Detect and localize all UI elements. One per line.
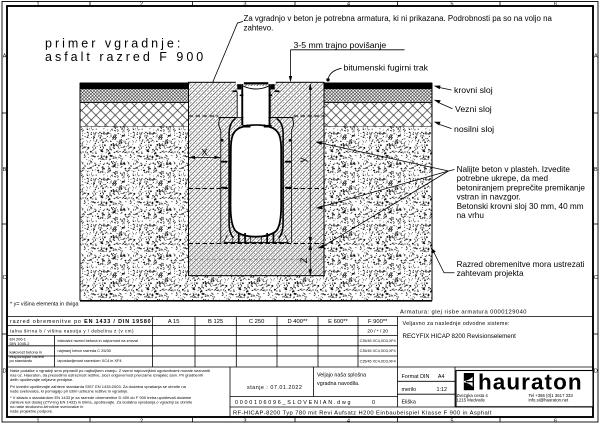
svg-text:1: 1: [37, 418, 40, 424]
svg-text:zahtevam projekta: zahtevam projekta: [457, 269, 524, 278]
svg-text:vgradna navodila.: vgradna navodila.: [317, 381, 360, 387]
svg-text:y: y: [298, 157, 309, 162]
svg-text:potrebne ukrepe, da med: potrebne ukrepe, da med: [457, 174, 549, 183]
svg-text:Veljajo naša splošna: Veljajo naša splošna: [317, 373, 366, 379]
svg-text:B 125: B 125: [208, 319, 223, 325]
svg-text:Razred obremenitve mora ustrez: Razred obremenitve mora ustrezati: [457, 260, 585, 269]
svg-text:1215 Medvode: 1215 Medvode: [457, 398, 486, 403]
svg-text:Armatura: glej risbe armatura: Armatura: glej risbe armatura 0000129040: [400, 310, 527, 316]
svg-text:A: A: [3, 54, 7, 60]
svg-text:Z: Z: [299, 257, 310, 263]
svg-text:vstran in navzgor.: vstran in navzgor.: [457, 193, 521, 202]
svg-text:stanje : 07.01.2022: stanje : 07.01.2022: [247, 385, 302, 391]
svg-text:nosilni sloj: nosilni sloj: [454, 124, 494, 134]
svg-text:betoniranjem preprečite premik: betoniranjem preprečite premikanje: [457, 183, 586, 192]
svg-text:B: B: [594, 167, 598, 173]
svg-text:C: C: [3, 275, 7, 281]
svg-text:4: 4: [347, 418, 350, 424]
svg-text:F 900**: F 900**: [368, 319, 388, 325]
svg-text:2: 2: [140, 1, 143, 7]
svg-text:5: 5: [451, 1, 454, 7]
svg-text:3: 3: [244, 418, 247, 424]
svg-text:Format DIN: Format DIN: [402, 374, 430, 380]
svg-text:0: 0: [372, 400, 375, 406]
svg-text:trdnostni razred betona in odp: trdnostni razred betona in odpornost na …: [58, 338, 139, 343]
svg-text:20 / * / 20: 20 / * / 20: [367, 329, 388, 335]
svg-text:D: D: [3, 369, 7, 375]
svg-text:0000106096_SLOVENIAN.dwg: 0000106096_SLOVENIAN.dwg: [235, 400, 352, 406]
svg-text:naše svetovalce, ki pomagajo p: naše svetovalce, ki pomagajo pri izbiri …: [10, 389, 129, 394]
svg-text:3-5 mm trajno povišanje: 3-5 mm trajno povišanje: [294, 40, 387, 50]
svg-text:RF-HICAP-8200 Typ 780 mit Revi: RF-HICAP-8200 Typ 780 mit Revi Aufsatz H…: [233, 411, 492, 417]
svg-text:A4: A4: [438, 374, 445, 380]
svg-text:D: D: [594, 369, 598, 375]
svg-text:merilo: merilo: [402, 387, 417, 393]
svg-text:C 250: C 250: [249, 319, 264, 325]
svg-text:bitumenski fugirni trak: bitumenski fugirni trak: [344, 62, 429, 72]
svg-text:po standardu: po standardu: [10, 358, 33, 363]
svg-text:RECYFIX HICAP 8200 Revisionsel: RECYFIX HICAP 8200 Revisionselement: [403, 333, 517, 340]
svg-text:Nalijte beton v plasteh. Izved: Nalijte beton v plasteh. Izvedite: [457, 165, 571, 174]
svg-text:4: 4: [347, 1, 350, 7]
svg-text:krovni sloj: krovni sloj: [454, 85, 493, 95]
svg-text:1: 1: [37, 1, 40, 7]
svg-text:5: 5: [451, 418, 454, 424]
svg-text:2: 2: [140, 418, 143, 424]
svg-text:DIN 1045-2: DIN 1045-2: [10, 341, 30, 346]
svg-text:6: 6: [554, 1, 557, 7]
svg-text:C35/45 XC4,XD3,XF4: C35/45 XC4,XD3,XF4: [360, 349, 396, 353]
svg-text:C35/45 XC4,XD3,XF4: C35/45 XC4,XD3,XF4: [360, 339, 396, 343]
svg-text:na vrhu: na vrhu: [457, 211, 485, 220]
svg-text:C35/45 XC4,XD3,XF4: C35/45 XC4,XD3,XF4: [360, 359, 396, 363]
svg-text:razred obremenitve po EN 1433: razred obremenitve po EN 1433 / DIN 1958…: [10, 319, 152, 325]
svg-text:hauraton: hauraton: [478, 370, 583, 395]
svg-text:1:12: 1:12: [437, 387, 448, 393]
svg-text:Veljavno za naslednje odvodne: Veljavno za naslednje odvodne sisteme:: [403, 321, 510, 327]
svg-text:D 400**: D 400**: [288, 319, 309, 325]
svg-text:Vezni sloj: Vezni sloj: [455, 104, 492, 114]
svg-text:Za vgradnjo v beton je potrebn: Za vgradnjo v beton je potrebna armatura…: [244, 14, 553, 23]
svg-text:B: B: [3, 167, 7, 173]
svg-text:6: 6: [554, 418, 557, 424]
svg-text:E 600**: E 600**: [328, 319, 348, 325]
svg-text:X: X: [201, 147, 208, 158]
svg-text:najmanj beton razreda C 25/30: najmanj beton razreda C 25/30: [58, 348, 112, 353]
svg-text:talna širina b / višina nasutj: talna širina b / višina nasutja y / debe…: [10, 328, 134, 333]
svg-text:delih upoštevajte veljavne pre: delih upoštevajte veljavne predpise.: [10, 377, 73, 382]
svg-text:3: 3: [244, 1, 247, 7]
svg-text:asfalt razred F 900: asfalt razred F 900: [45, 50, 206, 64]
svg-text:info.si@hauraton.net: info.si@hauraton.net: [529, 398, 570, 403]
svg-text:primer vgradnje:: primer vgradnje:: [45, 37, 183, 51]
svg-text:A 15: A 15: [168, 319, 180, 325]
svg-text:Betonski krovni sloj 30 mm, 40: Betonski krovni sloj 30 mm, 40 mm: [457, 202, 584, 211]
svg-text:* y= višina elementa in dviga: * y= višina elementa in dviga: [10, 302, 78, 308]
svg-text:C: C: [594, 275, 598, 281]
svg-text:Eliška: Eliška: [402, 400, 416, 406]
svg-text:izpostavljenost razredom XC4 i: izpostavljenost razredom XC4 in XF4: [58, 358, 123, 363]
svg-text:zahtevo.: zahtevo.: [244, 24, 274, 33]
svg-text:naše projektne podpore.: naše projektne podpore.: [10, 409, 53, 414]
svg-text:A: A: [594, 54, 598, 60]
